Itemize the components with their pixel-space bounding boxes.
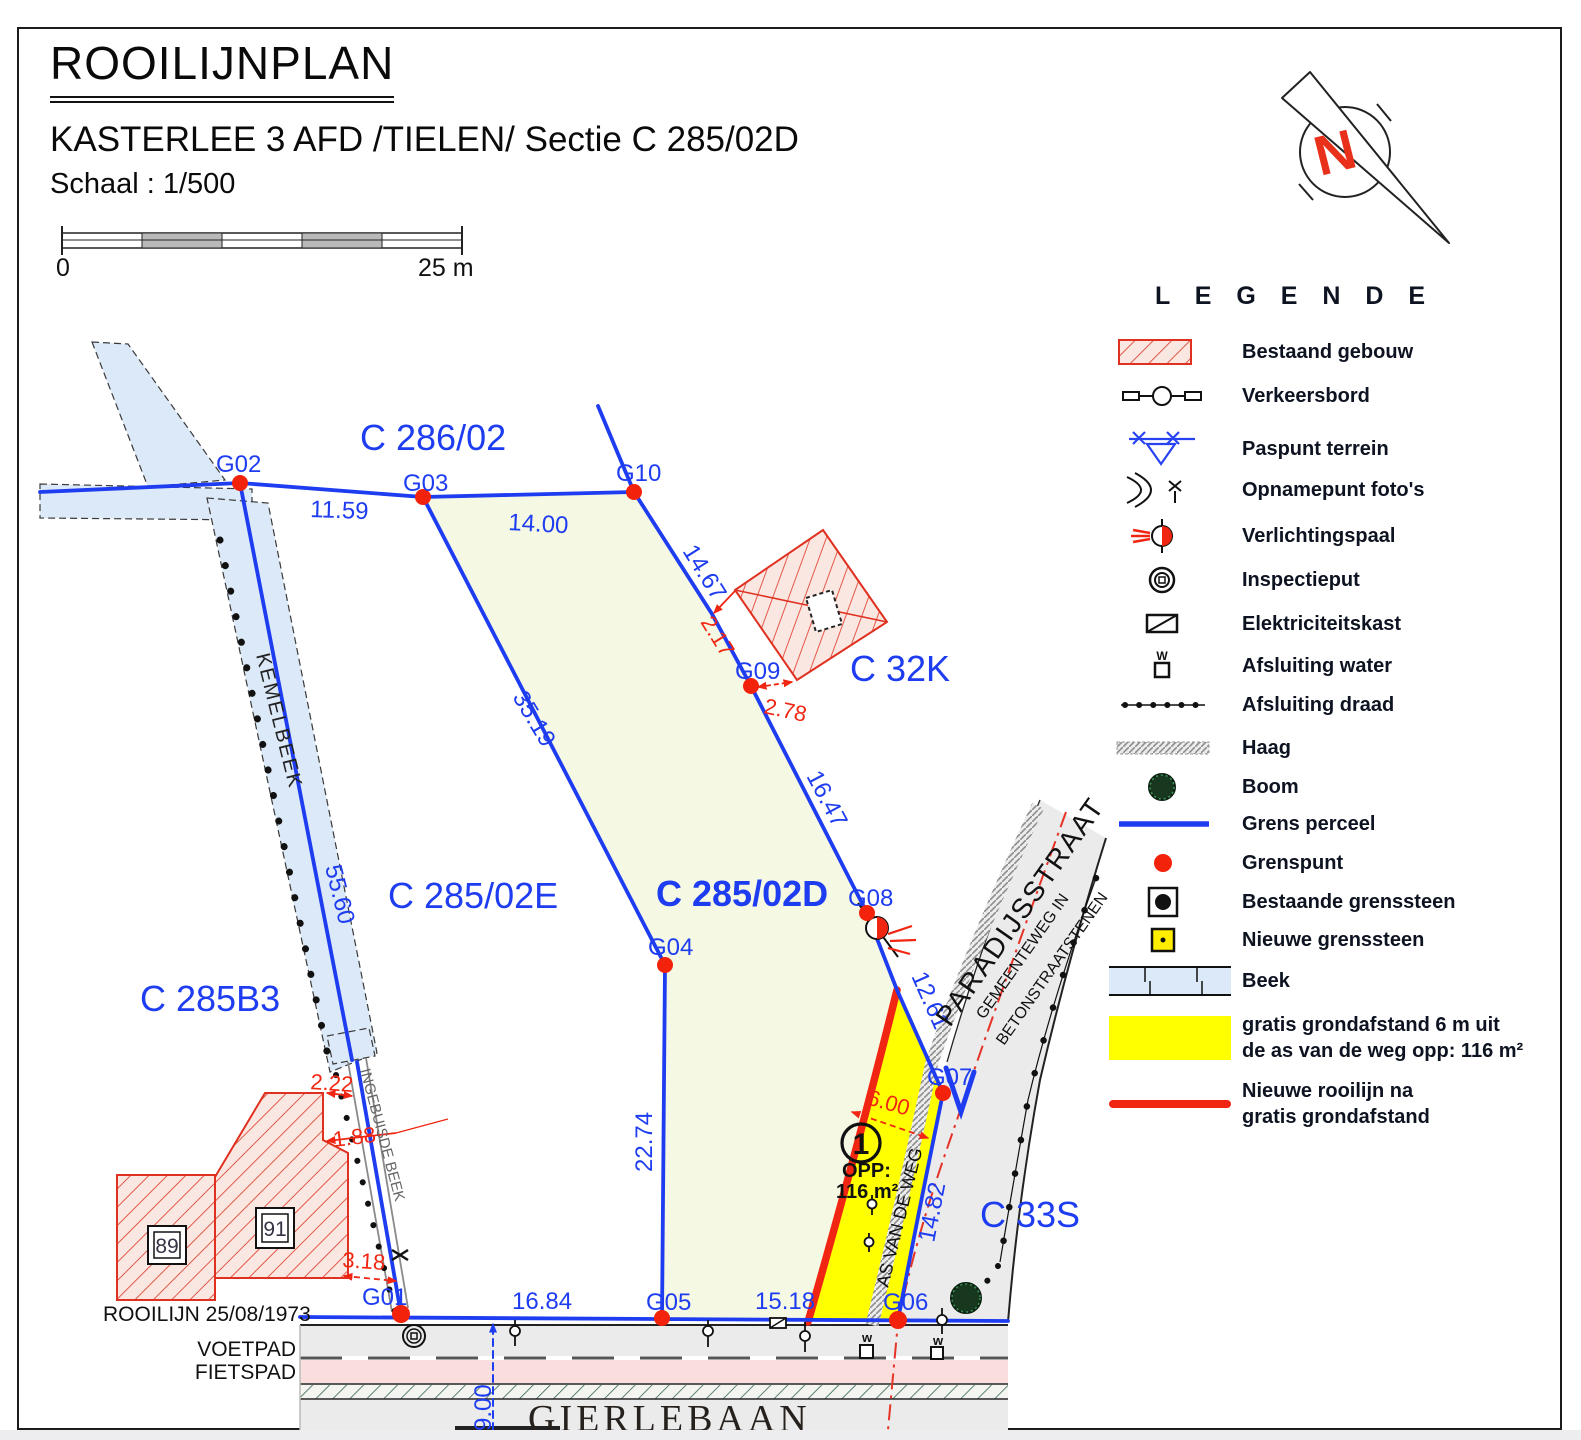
legend-item-beek: Beek xyxy=(1104,962,1564,1000)
legend-item-afsluiting-water: W Afsluiting draad Afsluiting water xyxy=(1104,647,1564,685)
dim-1518: 15.18 xyxy=(755,1288,815,1315)
dim-1684: 16.84 xyxy=(512,1288,572,1315)
legend-item-nieuwe-rooilijn: Nieuwe rooilijn na gratis grondafstand xyxy=(1104,1076,1564,1132)
scale-zero-label: 0 xyxy=(56,254,70,282)
legend-item-grens-perceel: Grens perceel xyxy=(1104,805,1564,843)
legend-item-grenspunt: Grenspunt xyxy=(1104,844,1564,882)
parcel-label-32k: C 32K xyxy=(850,648,950,689)
point-label-g06: G06 xyxy=(883,1289,928,1316)
legend-item-paspunt-terrein: Paspunt terrein xyxy=(1104,430,1564,468)
rooilijn-line2: gratis grondafstand xyxy=(1242,1106,1430,1128)
inspectieput-icon xyxy=(1104,561,1236,599)
dim-318: 3.18 xyxy=(342,1247,386,1275)
housenumber-plate-91: 91 xyxy=(256,1208,294,1248)
zone-1-number: 1 xyxy=(853,1128,870,1161)
opnamepunt-fotos-icon xyxy=(1104,471,1236,509)
nieuwe-rooilijn-icon xyxy=(1104,1076,1236,1132)
verlichtingspaal-icon xyxy=(1104,517,1236,555)
afsluiting-water-icon: W xyxy=(1104,647,1236,685)
haag-icon xyxy=(1104,729,1236,767)
opp-value-label: 116 m² xyxy=(836,1181,899,1203)
point-label-g08: G08 xyxy=(848,885,893,912)
legend-item-inspectieput: Inspectieput xyxy=(1104,561,1564,599)
point-label-g05: G05 xyxy=(646,1289,691,1316)
afsluiting-draad-icon xyxy=(1104,686,1236,724)
gratis-line1: gratis grondafstand 6 m uit xyxy=(1242,1014,1500,1036)
dim-1159: 11.59 xyxy=(310,496,369,525)
grens-perceel-icon xyxy=(1104,805,1236,843)
point-label-g01: G01 xyxy=(362,1284,407,1311)
legend-item-bestaand-gebouw: Bestaand gebouw xyxy=(1104,333,1564,371)
legend-item-elektriciteitskast: Elektriciteitskast xyxy=(1104,605,1564,643)
point-label-g04: G04 xyxy=(648,934,693,961)
beek-icon xyxy=(1104,962,1236,1000)
dim-188: 1.88 xyxy=(332,1122,378,1152)
housenumber-91: 91 xyxy=(263,1218,286,1241)
gratis-line2: de as van de weg opp: 116 m² xyxy=(1242,1040,1523,1062)
voetpad-label: VOETPAD xyxy=(197,1338,296,1361)
rooilijn-line1: Nieuwe rooilijn na xyxy=(1242,1080,1413,1102)
w-label-2: w xyxy=(932,1333,944,1348)
parcel-label-285b3: C 285B3 xyxy=(140,978,280,1019)
water-letter: W xyxy=(1156,649,1168,663)
viewport-edge-strip xyxy=(0,1430,1581,1440)
w-label-1: w xyxy=(861,1330,873,1345)
dim-222: 2.22 xyxy=(310,1069,354,1097)
parcel-label-33s: C 33S xyxy=(980,1194,1080,1235)
scale-max-label: 25 m xyxy=(418,254,474,282)
legend-title: L E G E N D E xyxy=(1155,282,1434,311)
bestaande-grenssteen-icon xyxy=(1104,883,1236,921)
point-label-g10: G10 xyxy=(616,460,661,487)
scale-text: Schaal : 1/500 xyxy=(50,168,235,201)
legend-item-verlichtingspaal: Verlichtingspaal xyxy=(1104,517,1564,555)
gratis-grondafstand-icon xyxy=(1104,1010,1236,1066)
legend-item-bestaande-grenssteen: Bestaande grenssteen xyxy=(1104,883,1564,921)
dim-2274: 22.74 xyxy=(631,1112,658,1172)
housenumber-89: 89 xyxy=(155,1235,178,1258)
scale-bar: 0 25 m xyxy=(56,226,474,282)
point-label-g02: G02 xyxy=(216,451,261,478)
building-huis91 xyxy=(215,1093,348,1278)
grenspunt-icon xyxy=(1104,844,1236,882)
nieuwe-grenssteen-icon xyxy=(1104,921,1236,959)
legend-item-gratis-grondafstand: gratis grondafstand 6 m uit de as van de… xyxy=(1104,1010,1564,1066)
dim-1400: 14.00 xyxy=(508,509,569,539)
housenumber-plate-89: 89 xyxy=(148,1226,186,1264)
boom-icon xyxy=(1104,768,1236,806)
point-label-g03: G03 xyxy=(403,470,448,497)
legend-item-haag: Haag xyxy=(1104,729,1564,767)
parcel-label-28502d: C 285/02D xyxy=(656,873,828,914)
paspunt-terrein-icon xyxy=(1104,430,1236,468)
legend-item-afsluiting-draad: Afsluiting draad xyxy=(1104,686,1564,724)
parcel-label-28602: C 286/02 xyxy=(360,417,506,458)
boom-tree-symbol xyxy=(951,1283,981,1313)
point-label-g07: G07 xyxy=(927,1064,972,1091)
bestaand-gebouw-icon xyxy=(1104,333,1236,371)
fietspad-label: FIETSPAD xyxy=(195,1361,296,1384)
beek-kemelbeek xyxy=(40,342,377,1072)
elektriciteitskast-icon xyxy=(1104,605,1236,643)
rooilijn-1973-label: ROOILIJN 25/08/1973 xyxy=(103,1303,311,1326)
page-subtitle: KASTERLEE 3 AFD /TIELEN/ Sectie C 285/02… xyxy=(50,120,799,160)
page-title: ROOILIJNPLAN xyxy=(50,36,394,103)
opp-label: OPP: xyxy=(842,1160,891,1182)
dim-900: 9.00 xyxy=(470,1384,497,1431)
north-arrow: N xyxy=(1282,72,1449,243)
verkeersbord-icon xyxy=(1104,377,1236,415)
legend-item-verkeersbord: Verkeersbord xyxy=(1104,377,1564,415)
point-label-g09: G09 xyxy=(735,658,780,685)
legend-item-opnamepunt-fotos: Opnamepunt foto's xyxy=(1104,471,1564,509)
legend-item-nieuwe-grenssteen: Nieuwe grenssteen xyxy=(1104,921,1564,959)
legend-item-boom: Boom xyxy=(1104,768,1564,806)
parcel-label-28502e: C 285/02E xyxy=(388,875,558,916)
elektriciteitskast-symbol xyxy=(770,1318,786,1328)
